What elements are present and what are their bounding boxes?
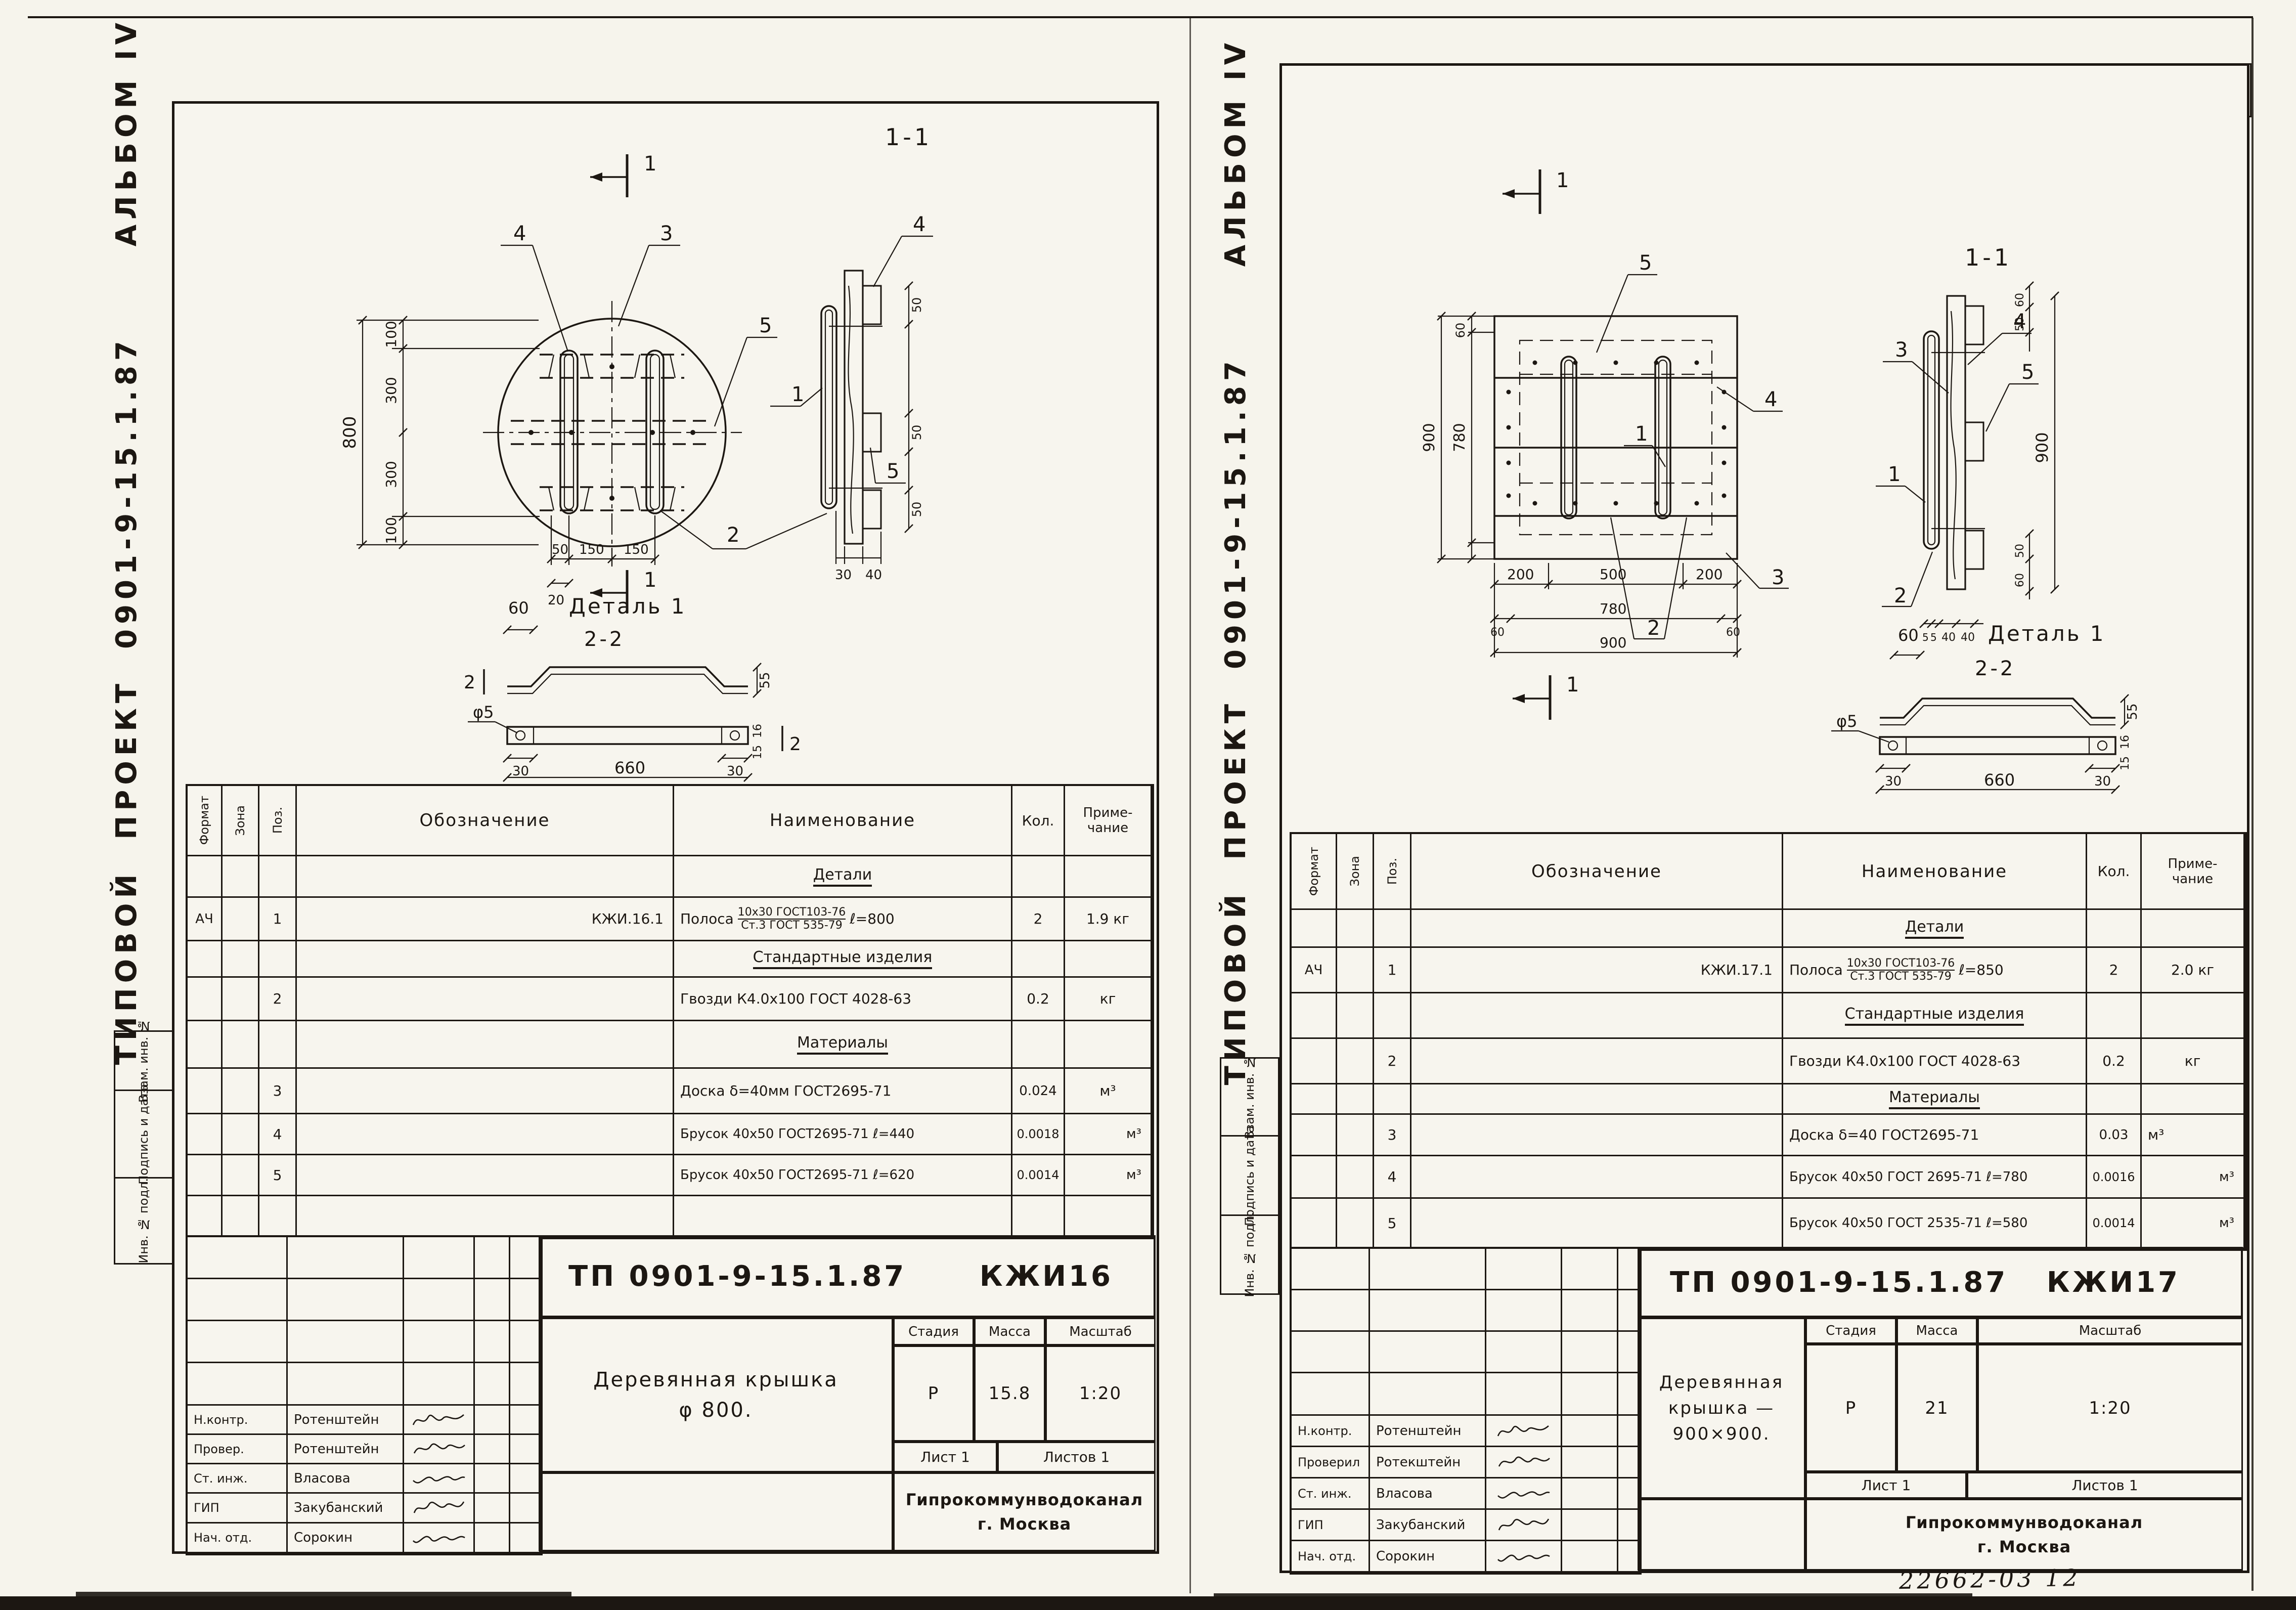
svg-text:50: 50 <box>2014 317 2026 331</box>
sig-name: Сорокин <box>288 1524 404 1553</box>
svg-text:4: 4 <box>513 222 526 245</box>
cell-name-polosa: Полоса10x30 ГОСТ103-76Ст.3 ГОСТ 535-79ℓ=… <box>674 898 1012 941</box>
sig-role: Проверил <box>1292 1447 1370 1478</box>
sig-name: Ротенштейн <box>288 1406 404 1435</box>
spec-table-kzhi16: Формат Зона Поз. Обозначение Наименовани… <box>186 784 1154 1239</box>
scan-bottom-smudge <box>76 1592 571 1597</box>
sig-role: Ст. инж. <box>1292 1478 1370 1510</box>
col-header-name: Наименование <box>1783 834 2087 910</box>
svg-text:2-2: 2-2 <box>584 628 625 651</box>
svg-text:2: 2 <box>727 524 739 547</box>
mass-value: 21 <box>1896 1344 1977 1472</box>
cell-name-bar1: Брусок 40x50 ГОСТ 2695-71 ℓ=780 <box>1783 1156 2087 1199</box>
cell-designation: КЖИ.16.1 <box>297 898 674 941</box>
drawing-title-line2: 900×900. <box>1672 1421 1770 1447</box>
svg-text:φ5: φ5 <box>473 703 494 722</box>
cell-format: АЧ <box>1292 948 1337 993</box>
cell-name-polosa: Полоса10x30 ГОСТ103-76Ст.3 ГОСТ 535-79ℓ=… <box>1783 948 2087 993</box>
org-city: г. Москва <box>1977 1535 2071 1559</box>
sheet-kzhi16: 1 1 1-1 <box>172 101 1159 1554</box>
svg-text:2: 2 <box>464 672 475 693</box>
signature-scribble <box>404 1435 475 1464</box>
sig-name: Ротекштейн <box>1370 1447 1486 1478</box>
svg-text:4: 4 <box>913 213 925 236</box>
album-title-right: ТИПОВОЙ ПРОЕКТ 0901-9-15.1.87 АЛЬБОМ IV <box>1208 162 1263 961</box>
signature-scribble <box>404 1494 475 1524</box>
svg-text:1-1: 1-1 <box>885 123 932 151</box>
svg-text:60: 60 <box>1726 626 1740 639</box>
titleblock-title-left: Деревянная крышка φ 800. <box>539 1318 893 1472</box>
signature-scribble <box>404 1524 475 1553</box>
sig-name: Закубанский <box>288 1494 404 1524</box>
margin-label: Подпись и дата <box>137 1084 151 1185</box>
plan-view-circle-cover <box>483 301 742 567</box>
svg-text:50: 50 <box>910 502 924 517</box>
margin-label: Инв. № подл. <box>1243 1212 1257 1297</box>
svg-text:30: 30 <box>727 764 743 779</box>
svg-text:3: 3 <box>660 222 673 245</box>
sig-role: Нач. отд. <box>1292 1541 1370 1573</box>
col-header-pos: Поз. <box>259 786 297 856</box>
doc-number: ТП 0901-9-15.1.87 <box>568 1260 906 1293</box>
sheets-cell: Листов 1 <box>997 1442 1156 1472</box>
titleblock-empty-right <box>1638 1499 1805 1571</box>
col-header-designation: Обозначение <box>297 786 674 856</box>
svg-text:20: 20 <box>548 593 564 608</box>
cell-name-bar1: Брусок 40x50 ГОСТ2695-71 ℓ=440 <box>674 1114 1012 1155</box>
section-row-details: Детали <box>1783 910 2087 948</box>
sig-name: Власова <box>1370 1478 1486 1510</box>
signature-scribble <box>1486 1541 1562 1573</box>
org-name: Гипрокоммунводоканал <box>1906 1510 2143 1535</box>
titleblock-doc-row-left: ТП 0901-9-15.1.87 КЖИ16 <box>539 1235 1156 1318</box>
svg-text:Деталь 1: Деталь 1 <box>1988 621 2106 646</box>
margin-box-inv-left: Инв. № подл. <box>114 1177 173 1265</box>
svg-text:2: 2 <box>1647 617 1660 640</box>
sig-name: Ротенштейн <box>288 1435 404 1464</box>
svg-text:16: 16 <box>2119 735 2132 749</box>
svg-text:50: 50 <box>2014 544 2026 558</box>
svg-text:30: 30 <box>835 568 852 583</box>
album-title-right-text: ТИПОВОЙ ПРОЕКТ 0901-9-15.1.87 АЛЬБОМ IV <box>1219 38 1252 1085</box>
album-title-left: ТИПОВОЙ ПРОЕКТ 0901-9-15.1.87 АЛЬБОМ IV <box>99 142 154 941</box>
signature-scribble <box>1486 1447 1562 1478</box>
scale-value: 1:20 <box>1045 1345 1156 1442</box>
sig-name: Сорокин <box>1370 1541 1486 1573</box>
svg-text:50: 50 <box>910 297 924 313</box>
svg-text:40: 40 <box>865 568 882 583</box>
svg-text:300: 300 <box>383 377 400 404</box>
org-name: Гипрокоммунводоканал <box>906 1488 1143 1512</box>
page-fold-line <box>1189 18 1191 1593</box>
svg-text:5: 5 <box>1930 631 1937 643</box>
svg-text:60: 60 <box>1490 626 1505 639</box>
titleblock-empty-left <box>539 1472 893 1551</box>
titleblock-title-right: Деревянная крышка — 900×900. <box>1638 1318 1805 1499</box>
svg-text:500: 500 <box>1600 566 1626 583</box>
cell-designation: КЖИ.17.1 <box>1411 948 1783 993</box>
svg-text:1: 1 <box>1556 169 1569 192</box>
doc-number: ТП 0901-9-15.1.87 <box>1670 1266 2008 1299</box>
sheets-cell: Листов 1 <box>1967 1472 2243 1499</box>
svg-text:1: 1 <box>644 569 656 592</box>
svg-text:2: 2 <box>1894 584 1907 607</box>
svg-text:780: 780 <box>1600 600 1626 617</box>
col-header-qty: Кол. <box>2087 834 2142 910</box>
svg-text:300: 300 <box>383 461 400 488</box>
section-row-standard: Стандартные изделия <box>674 941 1012 978</box>
svg-text:100: 100 <box>383 517 400 544</box>
sig-role: ГИП <box>188 1494 288 1524</box>
svg-text:30: 30 <box>2094 774 2111 789</box>
section-row-materials: Материалы <box>674 1021 1012 1069</box>
svg-text:2-2: 2-2 <box>1975 657 2015 680</box>
scan-top-edge <box>28 16 2253 18</box>
svg-text:30: 30 <box>512 764 529 779</box>
col-header-qty: Кол. <box>1012 786 1065 856</box>
detail-1-block: Деталь 1 60 2-2 55 φ5 30 <box>1831 621 2140 794</box>
scan-bottom-smudge2 <box>1214 1593 1972 1598</box>
titleblock-doc-row-right: ТП 0901-9-15.1.87 КЖИ17 <box>1638 1247 2243 1318</box>
doc-code: КЖИ16 <box>980 1260 1113 1293</box>
organization-right: Гипрокоммунводоканал г. Москва <box>1805 1499 2243 1571</box>
svg-text:1: 1 <box>644 152 656 176</box>
svg-text:5: 5 <box>2021 361 2034 384</box>
scale-value: 1:20 <box>1977 1344 2243 1472</box>
svg-text:4: 4 <box>1764 388 1777 411</box>
scanned-drawing-page: 11 ТИПОВОЙ ПРОЕКТ 0901-9-15.1.87 АЛЬБОМ … <box>0 0 2296 1610</box>
svg-text:2: 2 <box>789 734 801 755</box>
margin-label: Подпись и дата <box>1243 1125 1257 1226</box>
signature-scribble <box>404 1464 475 1494</box>
svg-text:60: 60 <box>2014 293 2026 307</box>
svg-text:55: 55 <box>758 672 773 688</box>
signature-scribble <box>404 1406 475 1435</box>
col-header-designation: Обозначение <box>1411 834 1783 910</box>
svg-text:900: 900 <box>1600 634 1626 651</box>
detail-1-block: Деталь 1 60 2-2 55 φ5 30 <box>464 594 801 781</box>
svg-text:800: 800 <box>340 416 360 449</box>
stage-value: Р <box>893 1345 974 1442</box>
cell-name-nails: Гвозди К4.0x100 ГОСТ 4028-63 <box>674 978 1012 1021</box>
svg-text:Деталь 1: Деталь 1 <box>569 594 687 619</box>
archive-stamp: 22662-03 12 <box>1899 1564 2081 1594</box>
svg-text:1-1: 1-1 <box>1965 244 2012 271</box>
sig-name: Закубанский <box>1370 1510 1486 1541</box>
sig-role: Н.контр. <box>1292 1416 1370 1447</box>
doc-code: КЖИ17 <box>2047 1266 2180 1299</box>
col-header-format: Формат <box>188 786 223 856</box>
drawing-kzhi16: 1 1 1-1 <box>174 104 1157 787</box>
margin-box-inv-right: Инв. № подл. <box>1220 1214 1279 1295</box>
cell-pos: 1 <box>259 898 297 941</box>
drawing-title-line1: Деревянная крышка — <box>1639 1370 1804 1421</box>
svg-text:50: 50 <box>910 425 924 441</box>
svg-text:60: 60 <box>508 598 529 618</box>
margin-box-podpis-left: Подпись и дата <box>114 1090 173 1179</box>
svg-text:50: 50 <box>552 542 568 557</box>
margin-label: Инв. № подл. <box>137 1178 151 1264</box>
svg-text:φ5: φ5 <box>1836 712 1857 731</box>
drawing-kzhi17: 1 1 1-1 <box>1282 66 2247 835</box>
svg-text:15: 15 <box>752 745 764 759</box>
col-header-pos: Поз. <box>1374 834 1411 910</box>
svg-text:660: 660 <box>1984 770 2015 790</box>
margin-box-vzam-right: Взам. инв. № <box>1220 1057 1279 1137</box>
sheet-kzhi17: 1 1 1-1 <box>1279 63 2249 1573</box>
svg-text:5: 5 <box>1639 251 1652 275</box>
sheet-cell: Лист 1 <box>893 1442 997 1472</box>
drawing-title-line1: Деревянная крышка <box>593 1365 838 1395</box>
signature-scribble <box>1486 1478 1562 1510</box>
scan-right-edge <box>2251 18 2254 1591</box>
col-header-format: Формат <box>1292 834 1337 910</box>
sig-role: Нач. отд. <box>188 1524 288 1553</box>
cell-name-nails: Гвозди К4.0x100 ГОСТ 4028-63 <box>1783 1039 2087 1084</box>
scale-header: Масштаб <box>1977 1318 2243 1344</box>
svg-text:60: 60 <box>1898 626 1919 645</box>
cell-name-bar2: Брусок 40x50 ГОСТ2695-71 ℓ=620 <box>674 1155 1012 1196</box>
plan-dimensions: 800 100 300 300 100 50 150 150 <box>340 316 659 608</box>
svg-text:16: 16 <box>752 724 764 738</box>
col-header-note: Приме-чание <box>1065 786 1152 856</box>
svg-text:60: 60 <box>1453 323 1468 338</box>
sig-name: Ротенштейн <box>1370 1416 1486 1447</box>
stage-header: Стадия <box>893 1318 974 1345</box>
album-title-left-text: ТИПОВОЙ ПРОЕКТ 0901-9-15.1.87 АЛЬБОМ IV <box>110 18 143 1065</box>
section-1-1-view <box>821 271 882 544</box>
titleblock-signatures-right: Н.контр. Ротенштейн Проверил Ротекштейн … <box>1290 1247 1642 1575</box>
stage-value: Р <box>1805 1344 1896 1472</box>
svg-text:40: 40 <box>1961 631 1975 644</box>
stage-header: Стадия <box>1805 1318 1896 1344</box>
svg-text:200: 200 <box>1696 566 1723 583</box>
svg-text:150: 150 <box>579 542 604 557</box>
svg-text:60: 60 <box>2014 573 2026 587</box>
cell-name-bar2: Брусок 40x50 ГОСТ 2535-71 ℓ=580 <box>1783 1199 2087 1249</box>
margin-box-vzam-left: Взам. инв. № <box>114 1030 173 1091</box>
sig-role: Провер. <box>188 1435 288 1464</box>
svg-text:1: 1 <box>1635 422 1648 446</box>
svg-text:1: 1 <box>791 383 804 406</box>
scale-header: Масштаб <box>1045 1318 1156 1345</box>
svg-text:55: 55 <box>2125 703 2140 720</box>
col-header-zone: Зона <box>223 786 259 856</box>
svg-text:660: 660 <box>614 758 645 777</box>
svg-text:900: 900 <box>2033 432 2052 463</box>
section-row-details: Детали <box>674 856 1012 898</box>
svg-text:780: 780 <box>1451 423 1469 452</box>
signature-scribble <box>1486 1510 1562 1541</box>
svg-text:30: 30 <box>1885 774 1902 789</box>
organization-left: Гипрокоммунводоканал г. Москва <box>893 1472 1156 1551</box>
sheet-cell: Лист 1 <box>1805 1472 1967 1499</box>
sig-name: Власова <box>288 1464 404 1494</box>
svg-text:15: 15 <box>2119 756 2132 770</box>
spec-table-kzhi17: Формат Зона Поз. Обозначение Наименовани… <box>1290 832 2247 1251</box>
svg-text:3: 3 <box>1895 338 1908 362</box>
svg-text:1: 1 <box>1566 673 1579 697</box>
section-1-1-view <box>1924 296 1985 589</box>
svg-text:900: 900 <box>1421 423 1438 452</box>
svg-text:5: 5 <box>1922 631 1929 643</box>
margin-box-podpis-right: Подпись и дата <box>1220 1135 1279 1216</box>
scan-bottom-band <box>0 1596 2296 1610</box>
cell-name-board: Доска δ=40мм ГОСТ2695-71 <box>674 1069 1012 1114</box>
sig-role: ГИП <box>1292 1510 1370 1541</box>
cell-format: АЧ <box>188 898 223 941</box>
svg-text:200: 200 <box>1507 566 1534 583</box>
drawing-title-line2: φ 800. <box>679 1395 753 1425</box>
section-row-materials: Материалы <box>1783 1084 2087 1115</box>
sig-role: Ст. инж. <box>188 1464 288 1494</box>
mass-header: Масса <box>1896 1318 1977 1344</box>
svg-text:100: 100 <box>383 321 400 347</box>
mass-value: 15.8 <box>974 1345 1045 1442</box>
org-city: г. Москва <box>978 1512 1071 1536</box>
cell-pos: 1 <box>1374 948 1411 993</box>
plan-dimensions: 60 780 900 200 500 200 60 780 <box>1421 312 1741 658</box>
col-header-name: Наименование <box>674 786 1012 856</box>
svg-text:40: 40 <box>1941 631 1956 644</box>
svg-text:5: 5 <box>887 460 899 483</box>
svg-text:1: 1 <box>1888 463 1901 486</box>
svg-text:150: 150 <box>624 542 649 557</box>
plan-view-square-cover <box>1494 316 1737 559</box>
cell-name-board: Доска δ=40 ГОСТ2695-71 <box>1783 1115 2087 1156</box>
col-header-zone: Зона <box>1337 834 1374 910</box>
titleblock-signatures-left: Н.контр. Ротенштейн Провер. Ротенштейн С… <box>186 1235 543 1555</box>
sig-role: Н.контр. <box>188 1406 288 1435</box>
signature-scribble <box>1486 1416 1562 1447</box>
svg-text:3: 3 <box>1772 566 1784 589</box>
svg-text:5: 5 <box>759 314 772 337</box>
section-row-standard: Стандартные изделия <box>1783 993 2087 1039</box>
col-header-note: Приме-чание <box>2142 834 2245 910</box>
mass-header: Масса <box>974 1318 1045 1345</box>
